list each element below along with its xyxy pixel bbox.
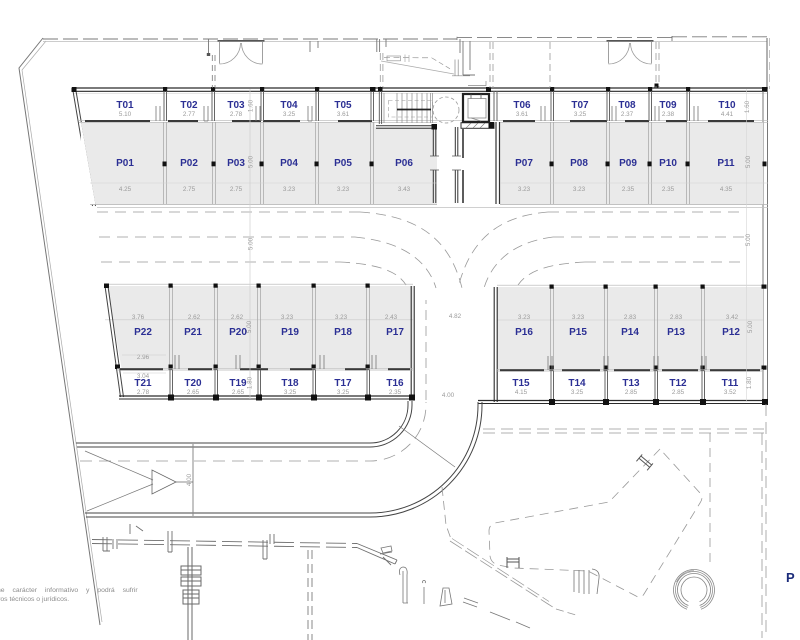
- svg-text:T17: T17: [334, 378, 352, 389]
- svg-text:2.83: 2.83: [624, 314, 637, 321]
- svg-text:2.43: 2.43: [385, 314, 398, 321]
- svg-text:P11: P11: [717, 158, 735, 169]
- svg-text:5.00: 5.00: [246, 320, 253, 333]
- svg-text:P13: P13: [667, 327, 685, 338]
- svg-text:3.25: 3.25: [283, 111, 296, 118]
- svg-text:T08: T08: [618, 100, 636, 111]
- svg-text:T11: T11: [722, 378, 739, 389]
- svg-text:T15: T15: [512, 378, 530, 389]
- svg-text:3.23: 3.23: [572, 314, 585, 321]
- svg-text:2.75: 2.75: [230, 186, 243, 193]
- svg-text:3.25: 3.25: [571, 389, 584, 396]
- svg-text:P17: P17: [386, 327, 404, 338]
- svg-text:5.00: 5.00: [747, 320, 754, 333]
- svg-text:5.10: 5.10: [119, 111, 132, 118]
- svg-text:3.25: 3.25: [337, 389, 350, 396]
- svg-text:1.60: 1.60: [248, 99, 255, 112]
- svg-text:2.37: 2.37: [621, 111, 634, 118]
- svg-text:T04: T04: [280, 100, 298, 111]
- svg-text:P05: P05: [334, 158, 352, 169]
- svg-text:T02: T02: [180, 100, 198, 111]
- svg-text:P: P: [786, 570, 795, 585]
- svg-text:P01: P01: [116, 158, 134, 169]
- svg-text:vos técnicos o jurídicos.: vos técnicos o jurídicos.: [0, 596, 69, 603]
- svg-text:P15: P15: [569, 327, 587, 338]
- svg-text:3.52: 3.52: [724, 389, 737, 396]
- svg-text:T03: T03: [227, 100, 245, 111]
- svg-text:P19: P19: [281, 327, 299, 338]
- svg-text:3.23: 3.23: [337, 186, 350, 193]
- svg-text:P16: P16: [515, 327, 533, 338]
- svg-text:T13: T13: [622, 378, 640, 389]
- svg-text:5.00: 5.00: [248, 155, 255, 168]
- svg-text:5.00: 5.00: [745, 155, 752, 168]
- svg-text:T07: T07: [571, 100, 589, 111]
- svg-text:4.15: 4.15: [515, 389, 528, 396]
- svg-text:1.80: 1.80: [746, 376, 753, 389]
- svg-text:T06: T06: [513, 100, 531, 111]
- svg-text:3.76: 3.76: [132, 314, 145, 321]
- svg-text:P02: P02: [180, 158, 198, 169]
- svg-text:ne carácter informativo y podr: ne carácter informativo y podrá sufrir: [0, 587, 138, 594]
- svg-text:P21: P21: [184, 327, 202, 338]
- svg-text:3.23: 3.23: [518, 314, 531, 321]
- svg-text:2.65: 2.65: [232, 389, 245, 396]
- svg-text:2.78: 2.78: [230, 111, 243, 118]
- svg-text:1.80: 1.80: [247, 376, 254, 389]
- svg-text:T20: T20: [184, 378, 202, 389]
- svg-text:P03: P03: [227, 158, 245, 169]
- svg-text:P14: P14: [621, 327, 639, 338]
- svg-text:2.35: 2.35: [662, 186, 675, 193]
- svg-text:3.23: 3.23: [573, 186, 586, 193]
- svg-text:P22: P22: [134, 327, 152, 338]
- svg-text:2.85: 2.85: [625, 389, 638, 396]
- svg-text:T05: T05: [334, 100, 352, 111]
- svg-text:P12: P12: [722, 327, 740, 338]
- svg-text:T19: T19: [229, 378, 247, 389]
- svg-text:3.61: 3.61: [516, 111, 529, 118]
- svg-text:3.25: 3.25: [574, 111, 587, 118]
- svg-text:4.82: 4.82: [449, 313, 462, 320]
- svg-text:T18: T18: [281, 378, 299, 389]
- svg-text:P18: P18: [334, 327, 352, 338]
- svg-text:3.43: 3.43: [398, 186, 411, 193]
- svg-text:P07: P07: [515, 158, 533, 169]
- svg-text:T01: T01: [116, 100, 134, 111]
- svg-text:2.62: 2.62: [188, 314, 201, 321]
- svg-text:4.00: 4.00: [186, 473, 193, 486]
- svg-text:2.85: 2.85: [672, 389, 685, 396]
- svg-text:4.00: 4.00: [442, 392, 455, 399]
- svg-text:4.25: 4.25: [119, 186, 132, 193]
- svg-text:P04: P04: [280, 158, 298, 169]
- svg-text:3.23: 3.23: [283, 186, 296, 193]
- svg-text:2.65: 2.65: [187, 389, 200, 396]
- svg-text:3.23: 3.23: [518, 186, 531, 193]
- svg-text:4.35: 4.35: [720, 186, 733, 193]
- svg-text:5.00: 5.00: [248, 237, 255, 250]
- svg-text:2.35: 2.35: [389, 389, 402, 396]
- svg-text:T16: T16: [386, 378, 404, 389]
- svg-text:3.23: 3.23: [335, 314, 348, 321]
- svg-text:2.78: 2.78: [137, 389, 150, 396]
- svg-text:4.41: 4.41: [721, 111, 734, 118]
- svg-text:3.42: 3.42: [726, 314, 739, 321]
- svg-text:5.00: 5.00: [745, 233, 752, 246]
- svg-text:3.23: 3.23: [281, 314, 294, 321]
- svg-text:3.25: 3.25: [284, 389, 297, 396]
- svg-text:P09: P09: [619, 158, 637, 169]
- svg-text:P06: P06: [395, 158, 413, 169]
- svg-text:2.75: 2.75: [183, 186, 196, 193]
- svg-text:P10: P10: [659, 158, 677, 169]
- svg-text:T12: T12: [669, 378, 687, 389]
- svg-text:P08: P08: [570, 158, 588, 169]
- svg-text:T14: T14: [568, 378, 586, 389]
- svg-text:1.60: 1.60: [744, 100, 751, 113]
- svg-text:2.35: 2.35: [622, 186, 635, 193]
- svg-text:2.77: 2.77: [183, 111, 196, 118]
- svg-text:T10: T10: [718, 100, 736, 111]
- svg-text:2.83: 2.83: [670, 314, 683, 321]
- svg-text:T09: T09: [659, 100, 677, 111]
- svg-text:P20: P20: [229, 327, 247, 338]
- svg-text:2.38: 2.38: [662, 111, 675, 118]
- svg-text:3.61: 3.61: [337, 111, 350, 118]
- svg-text:2.62: 2.62: [231, 314, 244, 321]
- svg-text:T21: T21: [134, 378, 152, 389]
